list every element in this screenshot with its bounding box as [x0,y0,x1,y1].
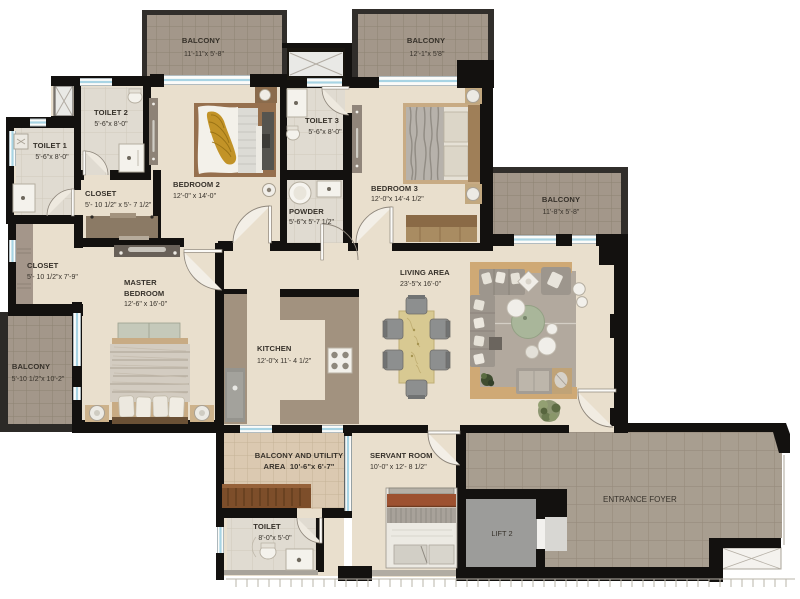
svg-text:5'-6"x 8'-0": 5'-6"x 8'-0" [94,121,128,128]
svg-text:12'-0"x 14'-4 1/2": 12'-0"x 14'-4 1/2" [371,196,424,203]
svg-text:CLOSET: CLOSET [27,261,59,270]
svg-text:5'-6"x 5'-7 1/2": 5'-6"x 5'-7 1/2" [289,219,335,226]
svg-text:BEDROOM 2: BEDROOM 2 [173,180,220,189]
svg-text:AREA 10'-6"x 6'-7": AREA 10'-6"x 6'-7" [264,462,335,471]
svg-text:MASTER: MASTER [124,278,157,287]
svg-text:SERVANT ROOM: SERVANT ROOM [370,451,433,460]
svg-text:BALCONY AND UTILITY: BALCONY AND UTILITY [255,451,343,460]
svg-text:5'-6"x 8'-0": 5'-6"x 8'-0" [35,154,69,161]
svg-text:12'-1"x 5'8": 12'-1"x 5'8" [410,51,445,58]
svg-text:LIVING AREA: LIVING AREA [400,268,450,277]
svg-text:BEDROOM 3: BEDROOM 3 [371,184,418,193]
svg-text:12'-6" x 16'-0": 12'-6" x 16'-0" [124,301,168,308]
svg-text:KITCHEN: KITCHEN [257,344,291,353]
svg-text:5'- 10 1/2" x 5'- 7 1/2": 5'- 10 1/2" x 5'- 7 1/2" [85,202,152,209]
svg-text:ENTRANCE FOYER: ENTRANCE FOYER [603,495,677,504]
svg-text:TOILET 3: TOILET 3 [305,116,339,125]
svg-text:CLOSET: CLOSET [85,189,117,198]
svg-text:5'-6"x 8'-0": 5'-6"x 8'-0" [308,129,342,136]
svg-text:12'-0"x 11'- 4 1/2": 12'-0"x 11'- 4 1/2" [257,358,312,365]
svg-text:TOILET 1: TOILET 1 [33,141,68,150]
svg-text:BALCONY: BALCONY [407,36,445,45]
svg-text:TOILET: TOILET [253,522,281,531]
svg-text:5'- 10 1/2"x 7'-9": 5'- 10 1/2"x 7'-9" [27,274,78,281]
svg-text:BALCONY: BALCONY [182,36,220,45]
svg-text:TOILET 2: TOILET 2 [94,108,128,117]
svg-text:LIFT 2: LIFT 2 [491,529,512,538]
svg-text:8'-0"x 5'-0": 8'-0"x 5'-0" [258,535,292,542]
svg-text:12'-0" x 14'-0": 12'-0" x 14'-0" [173,193,217,200]
svg-text:11'-8"x 5'-8": 11'-8"x 5'-8" [543,209,580,216]
svg-text:POWDER: POWDER [289,207,324,216]
svg-text:BEDROOM: BEDROOM [124,289,164,298]
svg-text:10'-0" x 12'- 8 1/2": 10'-0" x 12'- 8 1/2" [370,464,427,471]
svg-text:BALCONY: BALCONY [542,195,580,204]
svg-text:11'-11"x 5'-8": 11'-11"x 5'-8" [184,51,225,58]
svg-text:5'-10 1/2"x 10'-2": 5'-10 1/2"x 10'-2" [12,376,65,383]
svg-text:23'-5"x 16'-0": 23'-5"x 16'-0" [400,281,442,288]
svg-text:BALCONY: BALCONY [12,362,50,371]
